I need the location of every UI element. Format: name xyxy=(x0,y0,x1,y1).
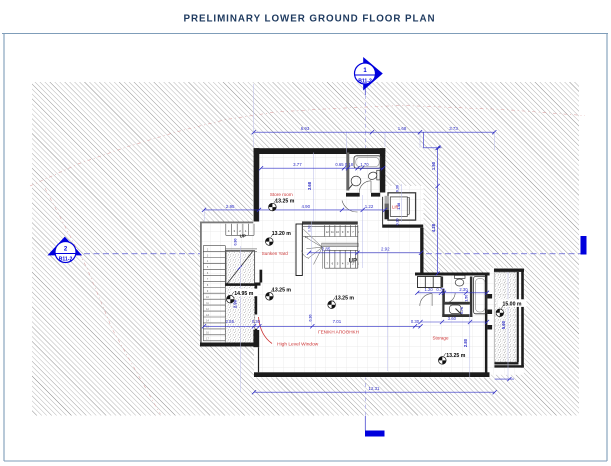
svg-text:4.90: 4.90 xyxy=(302,204,311,209)
svg-text:UP: UP xyxy=(240,234,246,239)
svg-text:5.60: 5.60 xyxy=(501,320,506,329)
svg-text:4.28: 4.28 xyxy=(431,223,436,232)
svg-text:0.90: 0.90 xyxy=(308,225,312,232)
svg-text:2.85: 2.85 xyxy=(322,246,331,251)
svg-text:3.68: 3.68 xyxy=(307,181,312,190)
svg-text:14.95 m: 14.95 m xyxy=(234,291,253,297)
svg-text:1.22: 1.22 xyxy=(365,204,374,209)
svg-text:1.68: 1.68 xyxy=(398,126,407,131)
svg-text:B11-2: B11-2 xyxy=(358,78,372,84)
svg-text:0.30: 0.30 xyxy=(396,185,400,192)
svg-text:13.25 m: 13.25 m xyxy=(272,288,291,294)
svg-text:0.30: 0.30 xyxy=(309,315,313,322)
svg-text:High Level Window: High Level Window xyxy=(277,341,319,347)
svg-text:ΓΕΝΙΚΗ ΑΠΟΘΗΚΗ: ΓΕΝΙΚΗ ΑΠΟΘΗΚΗ xyxy=(318,329,359,334)
svg-text:13.20 m: 13.20 m xyxy=(272,231,291,237)
svg-text:3.73: 3.73 xyxy=(449,126,458,131)
svg-text:6.93: 6.93 xyxy=(301,126,310,131)
svg-text:15.00 m: 15.00 m xyxy=(502,302,521,308)
svg-text:0.76: 0.76 xyxy=(460,307,464,314)
svg-text:UP: UP xyxy=(349,257,358,264)
svg-text:1.50: 1.50 xyxy=(431,161,436,170)
svg-text:Sunken Yard: Sunken Yard xyxy=(262,251,289,256)
svg-text:2.55: 2.55 xyxy=(226,319,235,324)
svg-text:0.30: 0.30 xyxy=(411,319,420,324)
svg-text:13.25 m: 13.25 m xyxy=(275,198,294,204)
svg-text:3.77: 3.77 xyxy=(293,162,302,167)
svg-text:0.18: 0.18 xyxy=(345,162,354,167)
svg-text:B11-2: B11-2 xyxy=(59,257,73,263)
svg-text:2.80: 2.80 xyxy=(463,338,468,347)
svg-text:0.30: 0.30 xyxy=(252,319,261,324)
svg-text:13.25 m: 13.25 m xyxy=(446,353,465,359)
svg-text:12.31: 12.31 xyxy=(369,386,381,391)
svg-text:3.60: 3.60 xyxy=(448,316,457,321)
svg-text:Storage: Storage xyxy=(432,336,449,341)
svg-text:0.30: 0.30 xyxy=(396,218,400,225)
svg-text:1.70: 1.70 xyxy=(360,162,369,167)
svg-text:0.65: 0.65 xyxy=(335,162,344,167)
svg-text:7.01: 7.01 xyxy=(333,319,342,324)
svg-text:PRELIMINARY LOWER GROUND FLOOR: PRELIMINARY LOWER GROUND FLOOR PLAN xyxy=(183,14,435,25)
svg-text:2.92: 2.92 xyxy=(381,247,390,252)
svg-text:1.20: 1.20 xyxy=(425,287,434,292)
svg-text:0.70: 0.70 xyxy=(436,287,445,292)
svg-text:0.90: 0.90 xyxy=(234,239,238,246)
svg-text:13.25 m: 13.25 m xyxy=(335,296,354,302)
svg-text:Store room: Store room xyxy=(270,192,293,197)
svg-text:1.48: 1.48 xyxy=(397,203,401,210)
svg-text:1.50: 1.50 xyxy=(464,295,468,302)
svg-text:2.95: 2.95 xyxy=(226,204,235,209)
svg-text:2.30: 2.30 xyxy=(459,287,468,292)
